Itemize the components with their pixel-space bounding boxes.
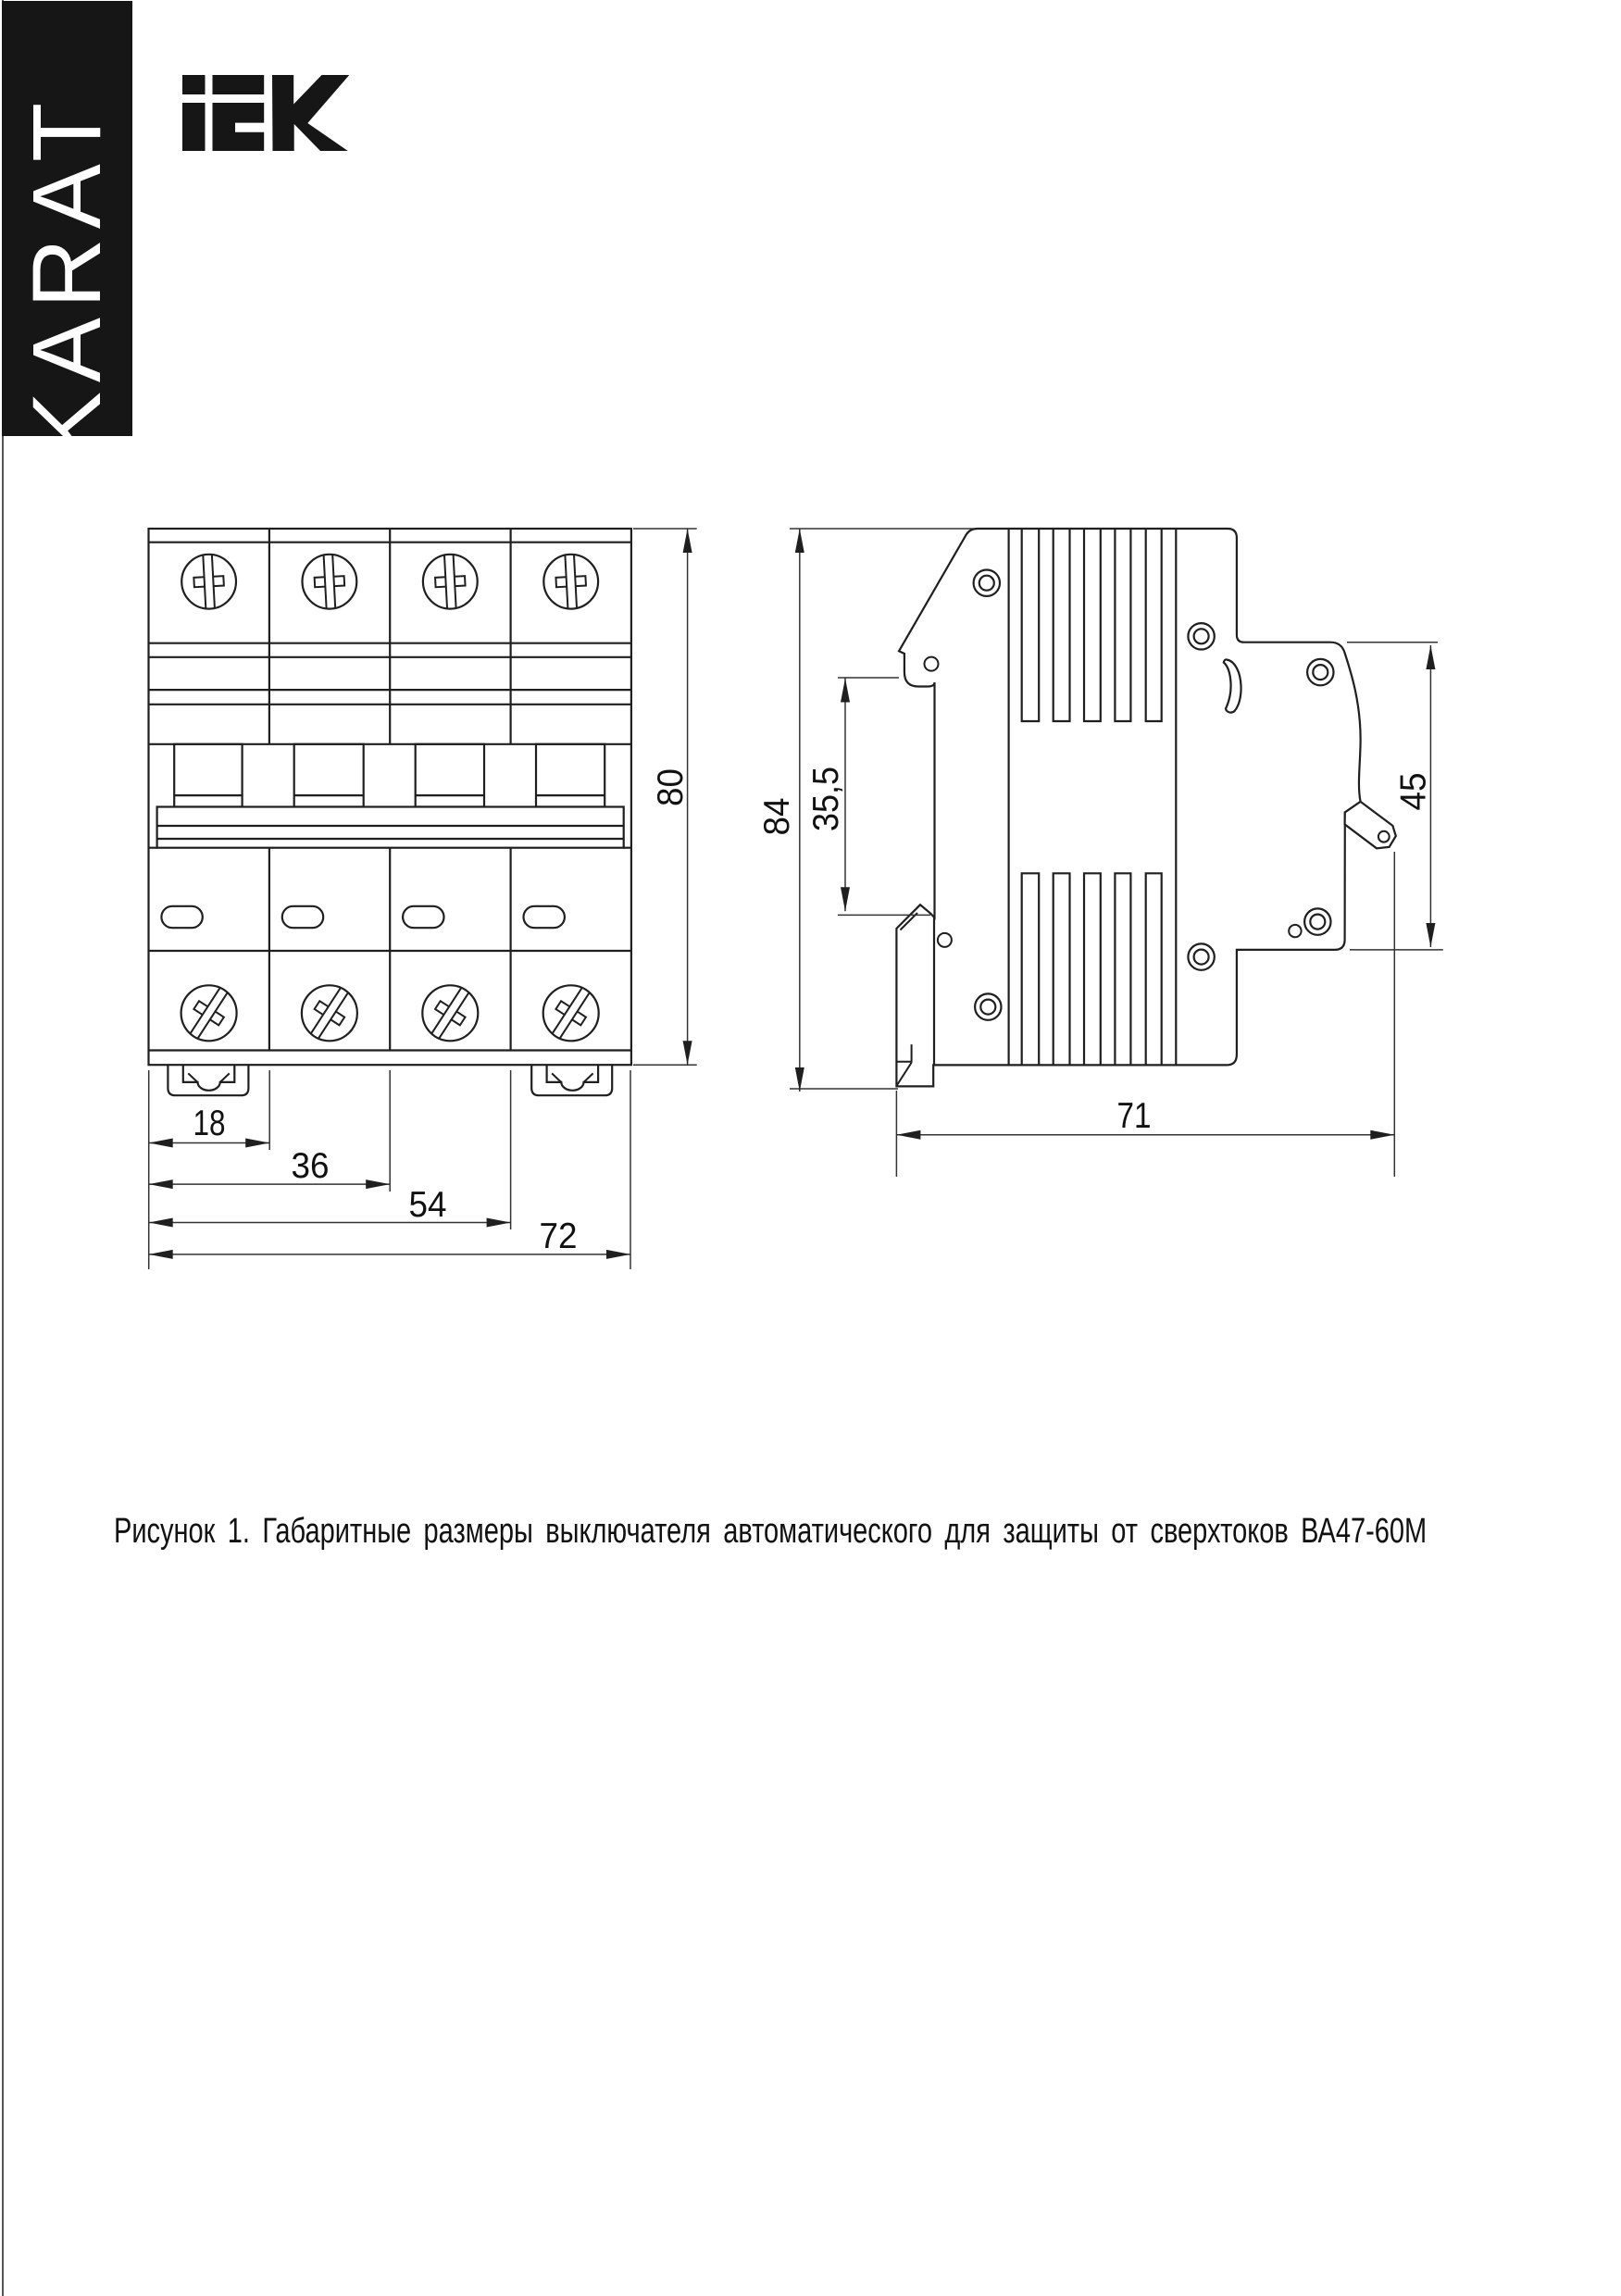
svg-text:18: 18 <box>193 1104 226 1143</box>
svg-text:71: 71 <box>1117 1096 1152 1136</box>
svg-text:84: 84 <box>757 798 797 836</box>
svg-text:35,5: 35,5 <box>806 767 846 831</box>
svg-text:80: 80 <box>651 768 691 806</box>
svg-text:72: 72 <box>540 1217 578 1256</box>
svg-text:45: 45 <box>1394 773 1434 811</box>
svg-text:36: 36 <box>292 1146 330 1186</box>
svg-text:54: 54 <box>409 1185 447 1225</box>
